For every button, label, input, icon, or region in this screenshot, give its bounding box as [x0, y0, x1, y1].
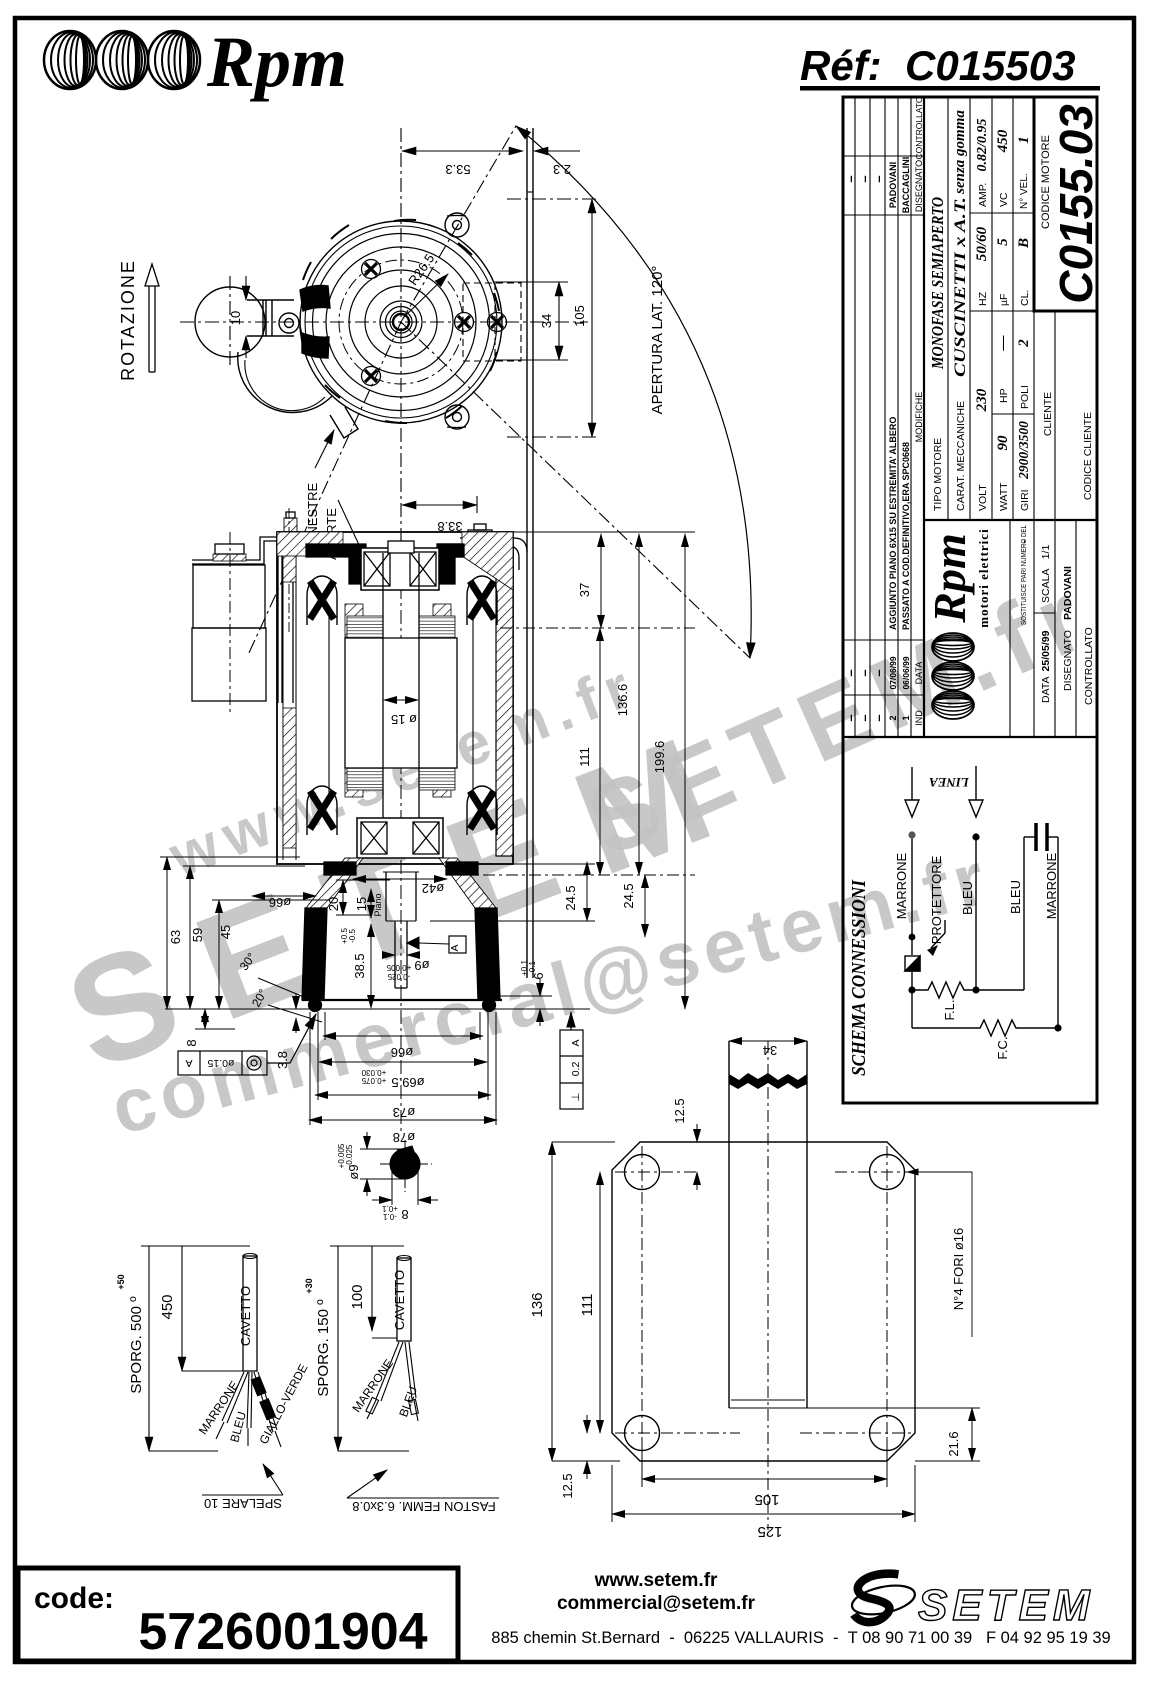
- svg-text:06/06/99: 06/06/99: [901, 656, 911, 689]
- svg-text:–: –: [857, 669, 872, 676]
- svg-text:ø9: ø9: [414, 958, 429, 973]
- svg-text:A: A: [570, 1039, 582, 1046]
- svg-text:12.5: 12.5: [672, 1098, 687, 1123]
- svg-text:ø78: ø78: [393, 1130, 415, 1145]
- svg-text:C0155.03: C0155.03: [1050, 104, 1102, 304]
- svg-text:+0.1: +0.1: [382, 1204, 398, 1213]
- svg-text:53.3: 53.3: [445, 162, 470, 177]
- svg-text:CAVETTO: CAVETTO: [392, 1270, 407, 1330]
- svg-text:ø66: ø66: [269, 895, 291, 910]
- svg-text:–: –: [857, 175, 872, 182]
- svg-text:–: –: [843, 175, 858, 182]
- svg-text:BLEU: BLEU: [1008, 880, 1023, 914]
- svg-text:34: 34: [539, 314, 554, 328]
- svg-text:450: 450: [159, 1294, 176, 1319]
- svg-text:136: 136: [529, 1292, 546, 1317]
- svg-text:15: 15: [354, 897, 369, 911]
- svg-text:MARRONE: MARRONE: [894, 852, 909, 919]
- svg-text:APERTURA LAT. 120°: APERTURA LAT. 120°: [649, 266, 666, 415]
- svg-text:–: –: [871, 669, 886, 676]
- svg-text:230: 230: [974, 388, 990, 412]
- svg-text:CONTROLLATO: CONTROLLATO: [914, 96, 924, 159]
- svg-text:commercial@setem.fr: commercial@setem.fr: [557, 1593, 756, 1614]
- svg-text:+0.005: +0.005: [386, 963, 411, 972]
- svg-text:N°4 FORI ø16: N°4 FORI ø16: [951, 1228, 966, 1311]
- svg-text:TIPO MOTORE: TIPO MOTORE: [932, 438, 944, 511]
- svg-text:59: 59: [190, 928, 205, 942]
- svg-text:8: 8: [401, 1207, 408, 1222]
- svg-text:⊥: ⊥: [570, 1092, 582, 1101]
- svg-text:50/60: 50/60: [974, 226, 990, 261]
- svg-text:CL.: CL.: [1019, 290, 1031, 306]
- svg-text:AMP.: AMP.: [977, 183, 989, 207]
- svg-text:www.setem.fr: www.setem.fr: [594, 1570, 718, 1591]
- svg-text:8: 8: [184, 1039, 199, 1046]
- svg-text:+0.075: +0.075: [361, 1076, 386, 1085]
- svg-text:DISEGNATO: DISEGNATO: [914, 160, 924, 212]
- svg-text:-0.1: -0.1: [528, 961, 537, 975]
- svg-text:-0.5: -0.5: [348, 929, 357, 943]
- svg-text:105: 105: [754, 1491, 779, 1508]
- svg-text:21.6: 21.6: [946, 1431, 961, 1456]
- svg-text:POLI: POLI: [1019, 385, 1031, 409]
- svg-text:2900/3500: 2900/3500: [1016, 421, 1031, 480]
- svg-text:GIRI: GIRI: [1019, 489, 1031, 511]
- svg-text:–: –: [871, 714, 886, 721]
- svg-text:24.5: 24.5: [563, 885, 578, 910]
- svg-text:ROTAZIONE: ROTAZIONE: [118, 259, 138, 381]
- svg-text:VC: VC: [998, 192, 1010, 207]
- svg-text:38.5: 38.5: [352, 953, 367, 978]
- svg-text:ø42: ø42: [422, 881, 444, 896]
- svg-text:1: 1: [901, 715, 911, 720]
- svg-text:SPELARE 10: SPELARE 10: [204, 1496, 282, 1511]
- svg-text:BLEU: BLEU: [960, 881, 975, 915]
- svg-text:34: 34: [763, 1043, 777, 1058]
- svg-text:ø66: ø66: [391, 1045, 413, 1060]
- svg-text:Rpm: Rpm: [206, 22, 347, 102]
- svg-text:+50: +50: [116, 1274, 126, 1289]
- svg-text:–: –: [843, 669, 858, 676]
- svg-text:63: 63: [168, 930, 183, 944]
- svg-text:2: 2: [1016, 339, 1032, 348]
- svg-text:25/05/99: 25/05/99: [1040, 630, 1052, 671]
- svg-text:136.6: 136.6: [615, 684, 630, 717]
- svg-text:MARRONE: MARRONE: [1044, 852, 1059, 919]
- svg-text:+30: +30: [304, 1278, 314, 1293]
- svg-text:CONTROLLATO: CONTROLLATO: [1083, 627, 1095, 705]
- svg-text:1: 1: [1016, 136, 1032, 144]
- svg-text:ø0.15: ø0.15: [207, 1057, 234, 1069]
- svg-text:IND: IND: [914, 710, 924, 726]
- svg-text:885 chemin St.Bernard - 0622: 885 chemin St.Bernard - 06225 VALLAURIS …: [491, 1629, 1110, 1647]
- svg-text:Réf: C015503: Réf: C015503: [800, 42, 1075, 89]
- svg-text:–: –: [871, 175, 886, 182]
- svg-text:PASSATO A COD.DEFINITIVO,ERA S: PASSATO A COD.DEFINITIVO,ERA SPC0668: [901, 442, 911, 630]
- svg-text:BACCAGLINI: BACCAGLINI: [901, 157, 911, 214]
- svg-text:–: –: [857, 714, 872, 721]
- svg-text:DISEGNATO: DISEGNATO: [1062, 630, 1074, 691]
- svg-text:199.6: 199.6: [652, 741, 667, 774]
- svg-text:B: B: [1016, 238, 1032, 249]
- svg-text:PADOVANI: PADOVANI: [1062, 566, 1074, 620]
- svg-text:5: 5: [995, 238, 1011, 246]
- svg-text:SCHEMA CONNESSIONI: SCHEMA CONNESSIONI: [849, 879, 870, 1076]
- svg-text:-0.025: -0.025: [387, 972, 410, 981]
- svg-text:DATA: DATA: [914, 662, 924, 685]
- svg-text:HP: HP: [998, 388, 1010, 403]
- svg-text:code:: code:: [34, 1582, 114, 1615]
- svg-text:SETEM: SETEM: [918, 1581, 1095, 1630]
- svg-text:1/1: 1/1: [1040, 545, 1052, 560]
- svg-text:FASTON FEMM. 6.3x0.8: FASTON FEMM. 6.3x0.8: [352, 1499, 496, 1514]
- svg-text:105: 105: [572, 305, 587, 327]
- svg-text:PADOVANI: PADOVANI: [888, 162, 898, 208]
- svg-text:AGGIUNTO PIANO 6X15 SU ESTREMI: AGGIUNTO PIANO 6X15 SU ESTREMITA’ ALBERO: [888, 417, 898, 630]
- svg-text:PROTETTORE: PROTETTORE: [929, 855, 944, 944]
- svg-text:Rpm: Rpm: [924, 533, 975, 623]
- svg-text:—: —: [995, 336, 1011, 352]
- svg-text:37: 37: [577, 583, 592, 597]
- svg-text:ø 15: ø 15: [391, 712, 417, 727]
- svg-text:A: A: [185, 1057, 192, 1069]
- svg-text:45: 45: [218, 925, 233, 939]
- svg-text:90: 90: [995, 435, 1011, 451]
- svg-text:5726001904: 5726001904: [138, 1603, 427, 1661]
- svg-text:20: 20: [326, 897, 341, 911]
- svg-text:HZ: HZ: [977, 291, 989, 306]
- svg-text:F.L.: F.L.: [942, 1000, 957, 1021]
- svg-text:CODICE CLIENTE: CODICE CLIENTE: [1082, 412, 1094, 500]
- svg-text:-0.025: -0.025: [345, 1144, 354, 1167]
- svg-text:MONOFASE SEMIAPERTO: MONOFASE SEMIAPERTO: [928, 197, 947, 370]
- svg-text:SPORG. 150 º: SPORG. 150 º: [315, 1299, 332, 1397]
- svg-text:MODIFICHE: MODIFICHE: [914, 392, 924, 443]
- svg-text:N° VEL.: N° VEL.: [1019, 173, 1030, 209]
- svg-text:A: A: [449, 944, 461, 951]
- svg-text:111: 111: [579, 1294, 596, 1317]
- svg-text:2: 2: [888, 715, 898, 720]
- svg-text:0.2: 0.2: [570, 1062, 582, 1077]
- svg-text:2.3: 2.3: [553, 162, 571, 177]
- svg-text:CAVETTO: CAVETTO: [238, 1286, 253, 1346]
- svg-text:111: 111: [577, 747, 592, 767]
- svg-text:125: 125: [757, 1523, 782, 1540]
- svg-text:0.82/0.95: 0.82/0.95: [975, 119, 990, 172]
- svg-text:DATA: DATA: [1040, 677, 1052, 703]
- svg-text:F.C.: F.C.: [995, 1036, 1010, 1059]
- svg-text:3.8: 3.8: [275, 1051, 290, 1069]
- svg-text:10: 10: [228, 311, 243, 325]
- svg-text:VOLT: VOLT: [977, 484, 989, 511]
- svg-text:WATT: WATT: [998, 482, 1010, 511]
- svg-text:ø73: ø73: [393, 1105, 415, 1120]
- svg-text:SOSTITUISCE PARI NUMERO DEL: SOSTITUISCE PARI NUMERO DEL: [1019, 525, 1028, 625]
- svg-text:–: –: [843, 714, 858, 721]
- svg-text:SCALA: SCALA: [1040, 569, 1052, 603]
- svg-text:CARAT. MECCANICHE: CARAT. MECCANICHE: [955, 401, 967, 511]
- svg-text:+0.030: +0.030: [361, 1068, 386, 1077]
- svg-text:450: 450: [995, 129, 1011, 153]
- svg-text:24.5: 24.5: [621, 883, 636, 908]
- svg-text:ø69.5: ø69.5: [391, 1075, 424, 1090]
- svg-text:-: -: [1019, 540, 1029, 543]
- svg-text:07/06/99: 07/06/99: [888, 656, 898, 689]
- svg-text:100: 100: [349, 1284, 366, 1309]
- svg-text:motori elettrici: motori elettrici: [976, 528, 991, 627]
- svg-text:12.5: 12.5: [560, 1473, 575, 1498]
- svg-text:CUSCINETTI x A.T.: CUSCINETTI x A.T.: [952, 197, 969, 377]
- svg-text:senza gomma: senza gomma: [952, 110, 968, 195]
- svg-text:CLIENTE: CLIENTE: [1042, 392, 1054, 436]
- svg-text:LINEA: LINEA: [929, 775, 970, 790]
- svg-text:-0.1: -0.1: [383, 1212, 397, 1221]
- svg-text:Piano: Piano: [373, 893, 383, 916]
- svg-text:SPORG. 500 º: SPORG. 500 º: [128, 1296, 145, 1394]
- svg-text:µF: µF: [998, 294, 1010, 306]
